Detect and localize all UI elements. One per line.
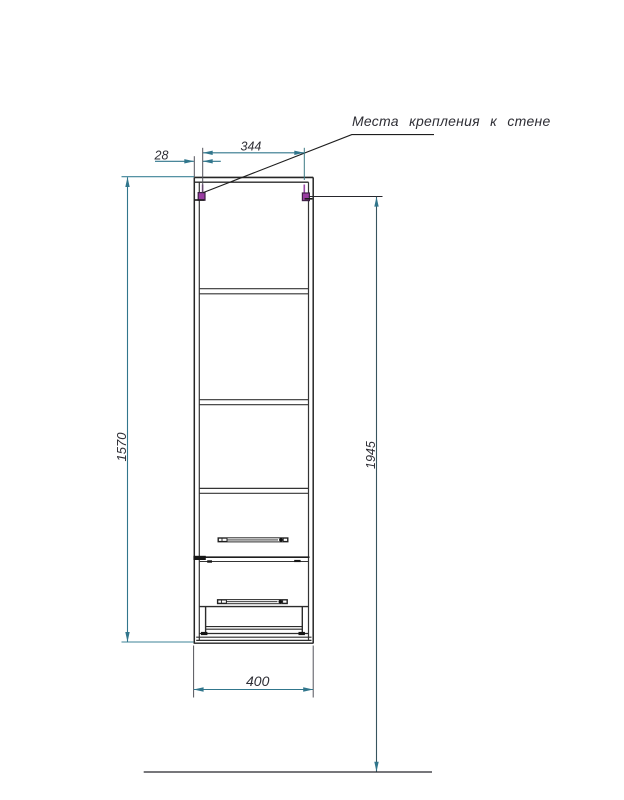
svg-text:1945: 1945	[364, 441, 378, 469]
svg-text:Места крепления к стене: Места крепления к стене	[352, 113, 551, 129]
svg-text:1570: 1570	[114, 432, 129, 462]
svg-text:28: 28	[154, 149, 169, 163]
svg-text:344: 344	[241, 139, 262, 153]
svg-text:400: 400	[246, 673, 270, 689]
